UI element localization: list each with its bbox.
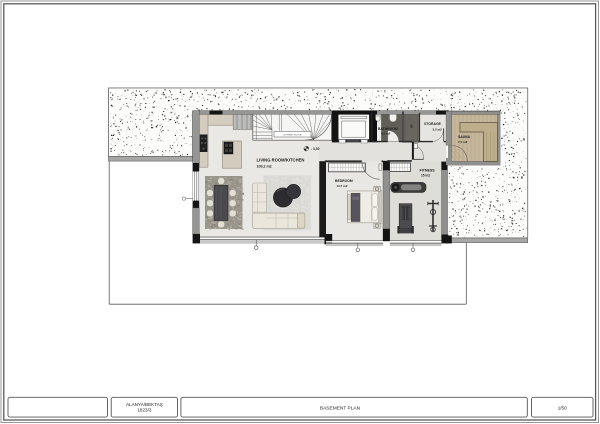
svg-text:7,5 m2: 7,5 m2 [458,140,468,144]
svg-text:BASEMENT PLAN: BASEMENT PLAN [320,406,361,412]
svg-text:14,7 m2: 14,7 m2 [337,184,348,188]
svg-text:3,5 m2: 3,5 m2 [433,128,443,132]
svg-text:109,2 m2: 109,2 m2 [257,165,272,169]
svg-text:15 m2: 15 m2 [421,173,430,177]
svg-text:FITNESS: FITNESS [420,169,436,173]
svg-text:4,5 m2: 4,5 m2 [381,132,391,136]
svg-text:STORAGE: STORAGE [424,122,441,126]
svg-text:- 3,30: - 3,30 [311,147,320,151]
svg-text:BEDROOM: BEDROOM [335,179,353,183]
svg-text:1823/3: 1823/3 [137,408,151,413]
svg-text:BATHROOM: BATHROOM [378,127,398,131]
svg-text:1/50: 1/50 [558,406,567,411]
svg-text:UP FIRST FLOOR: UP FIRST FLOOR [283,134,301,136]
svg-text:ALANYA/BEKTAŞ: ALANYA/BEKTAŞ [126,402,163,407]
svg-text:SAUNA: SAUNA [458,135,471,139]
svg-text:LIVING ROOM/KITCHEN: LIVING ROOM/KITCHEN [257,158,305,163]
